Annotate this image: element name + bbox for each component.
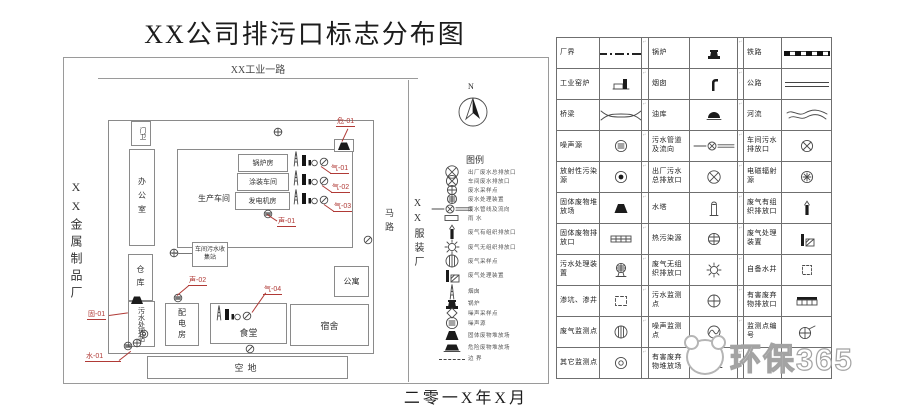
pollution-point — [132, 338, 142, 348]
sun-icon — [706, 262, 722, 278]
map-legend-item: 废气无组织排放口 — [440, 241, 516, 253]
legend-cell-label: 废气处理装置 — [744, 224, 782, 255]
legend-label: 桥梁 — [557, 110, 576, 121]
legend-cell-sep — [642, 69, 649, 100]
railway-icon — [784, 51, 830, 56]
legend-cell-sep — [642, 131, 649, 162]
building-label: 锅炉房 — [253, 158, 274, 168]
noise-source-icon — [614, 139, 628, 153]
legend-cell-label: 废气监测点 — [557, 317, 600, 348]
legend-cell-icon — [600, 38, 642, 69]
legend-cell-label: 电磁辐射源 — [744, 162, 782, 193]
map-legend-label: 边 界 — [468, 354, 482, 362]
kiln-icon — [611, 77, 631, 91]
legend-label: 放射性污染源 — [557, 167, 599, 187]
oil-depot-icon — [706, 109, 722, 121]
legend-cell-icon — [600, 286, 642, 317]
legend-cell-icon — [600, 131, 642, 162]
legend-cell-label: 铁路 — [744, 38, 782, 69]
legend-cell-label: 污水监测点 — [649, 286, 690, 317]
gas-treat-icon — [443, 267, 461, 283]
page-title: XX公司排污口标志分布图 — [63, 14, 547, 51]
legend-cell-icon — [782, 162, 832, 193]
building-boiler-room: 锅炉房 — [238, 154, 288, 172]
chimney-tower-icon — [214, 304, 224, 321]
building-office: 办公室 — [129, 149, 155, 246]
tag-hazard-01: 危-01 — [336, 118, 355, 127]
legend-label: 污水管道及流向 — [649, 136, 689, 156]
legend-cell-icon — [782, 224, 832, 255]
emission-cluster-2 — [291, 169, 330, 186]
building-power-room: 配电房 — [165, 303, 199, 346]
building-label: 宿舍 — [320, 319, 338, 332]
legend-label: 工业窑炉 — [557, 79, 591, 90]
trap-black-icon — [129, 292, 145, 309]
building-label: 配电房 — [177, 308, 188, 341]
map-legend-item: 边 界 — [440, 352, 482, 364]
legend-cell-sep — [642, 255, 649, 286]
legend-cell-sep — [642, 100, 649, 131]
top-road-label: XX工业一路 — [98, 61, 418, 76]
device-L-icon — [307, 194, 318, 205]
legend-cell-label: 污水管道及流向 — [649, 131, 690, 162]
legend-cell-icon — [782, 69, 832, 100]
solid-waste-icon — [612, 202, 630, 214]
tag-noise-02: 声-02 — [188, 277, 207, 286]
legend-label: 废气有组织排放口 — [744, 198, 781, 218]
map-legend-label: 固体废物堆放场 — [468, 331, 510, 339]
building-label: 仓库 — [135, 265, 146, 291]
outlet-main-icon — [706, 169, 722, 185]
legend-label: 有害废弃物堆放场 — [649, 353, 689, 373]
legend-cell-icon — [600, 317, 642, 348]
legend-cell-label: 厂界 — [557, 38, 600, 69]
legend-label: 铁路 — [744, 48, 763, 59]
right-neighbor-label: XX服装厂 — [410, 198, 425, 270]
device-L-icon — [230, 310, 241, 321]
legend-label: 油库 — [649, 110, 668, 121]
map-legend-label: 雨 水 — [468, 214, 482, 222]
map-legend-label: 烟囱 — [468, 287, 480, 295]
legend-label: 热污染源 — [649, 234, 683, 245]
legend-cell-label: 自备水井 — [744, 255, 782, 286]
map-legend-item: 废气处理装置 — [440, 269, 504, 281]
legend-cell-icon — [600, 69, 642, 100]
highway-icon — [785, 82, 829, 87]
river-icon — [785, 108, 829, 122]
legend-cell-icon — [600, 100, 642, 131]
legend-cell-sep — [642, 317, 649, 348]
black-bar-icon — [302, 174, 306, 186]
slash-circle-icon — [363, 232, 373, 249]
gas-treat-icon — [798, 231, 816, 247]
rainwater-icon — [444, 214, 460, 222]
map-legend-icon-slot — [440, 329, 464, 341]
building-label: 门卫 — [136, 127, 146, 140]
solid-outlet-icon — [610, 234, 632, 244]
building-label: 涂装车间 — [249, 177, 277, 187]
legend-cell-label: 噪声源 — [557, 131, 600, 162]
slash-circle-icon — [319, 176, 329, 186]
legend-cell-label: 锅炉 — [649, 38, 690, 69]
legend-label: 噪声监测点 — [649, 322, 689, 342]
legend-cell-sep — [642, 38, 649, 69]
legend-cell-label: 固体废物排放口 — [557, 224, 600, 255]
legend-label: 污水处理装置 — [557, 260, 599, 280]
legend-label: 固体废物堆放场 — [557, 198, 599, 218]
building-label: 车间污水收集站 — [193, 247, 227, 263]
map-legend-item: 固体废物堆放场 — [440, 329, 510, 341]
pollution-point — [245, 344, 255, 354]
tag-gas-01: 气-01 — [330, 165, 349, 174]
map-legend-item: 噪声源 — [440, 317, 486, 329]
map-legend-icon-slot — [440, 214, 464, 222]
legend-cell-label: 放射性污染源 — [557, 162, 600, 193]
legend-label: 公路 — [744, 79, 763, 90]
legend-cell-sep — [642, 286, 649, 317]
building-sewage-collect: 车间污水收集站 — [192, 242, 228, 267]
legend-cell-label: 废气无组织排放口 — [649, 255, 690, 286]
legend-label: 水塔 — [649, 203, 668, 214]
legend-label: 污水监测点 — [649, 291, 689, 311]
map-legend-label: 噪声采样点 — [468, 309, 498, 317]
legend-cell-sep — [642, 193, 649, 224]
map-legend-item: 废气采样点 — [440, 255, 498, 267]
building-label: 公寓 — [344, 276, 360, 287]
emission-cluster-4 — [214, 304, 253, 321]
building-empty-lot: 空地 — [147, 356, 348, 379]
legend-cell-icon — [690, 69, 738, 100]
legend-cell-icon — [600, 255, 642, 286]
legend-label: 渗坑、渗井 — [557, 296, 599, 307]
legend-cell-label: 热污染源 — [649, 224, 690, 255]
black-bar-icon — [302, 193, 306, 205]
seepage-icon — [614, 295, 628, 307]
map-legend-item: 雨 水 — [440, 212, 482, 224]
legend-cell-icon — [690, 131, 738, 162]
building-label: 生产车间 — [198, 193, 230, 204]
legend-cell-sep — [642, 162, 649, 193]
legend-cell-label: 有害废弃物排放口 — [744, 286, 782, 317]
bridge-icon — [600, 109, 642, 121]
noise-source-icon — [445, 316, 459, 330]
legend-label: 河流 — [744, 110, 763, 121]
map-legend-label: 废气处理装置 — [468, 271, 504, 279]
legend-cell-label: 渗坑、渗井 — [557, 286, 600, 317]
legend-label: 烟囱 — [649, 79, 668, 90]
building-dorm: 宿舍 — [290, 304, 369, 346]
legend-label: 有害废弃物排放口 — [744, 291, 781, 311]
legend-cell-label: 水塔 — [649, 193, 690, 224]
legend-cell-icon — [600, 193, 642, 224]
map-legend-label: 噪声源 — [468, 319, 486, 327]
compass-icon — [452, 86, 494, 135]
legend-label: 车间污水排放口 — [744, 136, 781, 156]
screenshot-root: XX公司排污口标志分布图 XX工业一路 XX金属制品厂 XX服装厂 马路 门卫办… — [0, 0, 909, 410]
legend-cell-label: 工业窑炉 — [557, 69, 600, 100]
legend-cell-icon — [690, 100, 738, 131]
legend-cell-label: 其它监测点 — [557, 348, 600, 379]
road-label: 马路 — [383, 208, 396, 236]
device-L-icon — [307, 175, 318, 186]
outlet-workshop-icon — [799, 138, 815, 154]
solid-waste-icon — [443, 329, 461, 341]
collect-leader-line — [172, 253, 192, 254]
map-legend-label: 废气无组织排放口 — [468, 243, 516, 251]
left-neighbor-label: XX金属制品厂 — [68, 180, 85, 303]
watermark-text: 环保365 — [730, 334, 854, 379]
legend-cell-sep — [642, 348, 649, 379]
device-L-icon — [307, 156, 318, 167]
legend-cell-icon — [782, 131, 832, 162]
legend-cell-icon — [782, 38, 832, 69]
emission-cluster-1 — [291, 150, 330, 167]
plus-circle-icon — [132, 335, 142, 352]
road-line — [408, 80, 409, 382]
border-dash-icon — [439, 356, 465, 360]
legend-label: 电磁辐射源 — [744, 167, 781, 187]
stack-black-icon — [802, 200, 812, 216]
trap-black-icon — [336, 141, 352, 151]
building-label: 食堂 — [239, 326, 257, 339]
legend-cell-icon — [782, 255, 832, 286]
legend-cell-label: 河流 — [744, 100, 782, 131]
thermal-icon — [707, 232, 721, 246]
legend-label: 厂界 — [557, 48, 576, 59]
legend-cell-sep — [642, 224, 649, 255]
building-label: 办公室 — [137, 177, 148, 219]
sewage-treat-icon — [613, 262, 629, 278]
legend-cell-label: 废气有组织排放口 — [744, 193, 782, 224]
slash-circle-icon — [245, 341, 255, 358]
building-paint-shop: 涂装车间 — [237, 173, 289, 191]
legend-cell-icon — [782, 100, 832, 131]
legend-label: 锅炉 — [649, 48, 668, 59]
map-legend-label: 危险废物堆放场 — [468, 343, 510, 351]
chimney-icon — [708, 76, 720, 92]
map-legend-label: 废水处理装置 — [468, 195, 504, 203]
chimney-tower-icon — [291, 150, 301, 167]
well-icon — [801, 264, 813, 276]
pipe-flow-icon — [693, 140, 735, 152]
legend-label: 自备水井 — [744, 265, 778, 276]
black-bar-icon — [225, 309, 229, 321]
map-legend-label: 废气有组织排放口 — [468, 228, 516, 236]
tag-water-01: 水-01 — [85, 353, 121, 362]
building-gate: 门卫 — [131, 121, 151, 146]
radioactive-icon — [614, 170, 628, 184]
monitor-other-icon — [614, 356, 628, 370]
boiler-icon — [705, 46, 723, 60]
hazard-waste-pile — [334, 139, 354, 152]
building-apartment: 公寓 — [334, 266, 369, 297]
map-legend-icon-slot — [440, 316, 464, 330]
legend-cell-icon — [600, 162, 642, 193]
legend-cell-label: 公路 — [744, 69, 782, 100]
map-legend-icon-slot — [440, 356, 464, 360]
legend-label: 出厂污水总排放口 — [649, 167, 689, 187]
legend-table: 厂界锅炉铁路工业窑炉烟囱公路桥梁油库河流噪声源污水管道及流向车间污水排放口放射性… — [556, 37, 832, 379]
tag-gas-04: 气-04 — [263, 286, 282, 295]
monitor-gas-icon — [613, 324, 629, 340]
emag-icon — [800, 170, 814, 184]
top-road-line — [98, 78, 418, 79]
legend-cell-icon — [690, 38, 738, 69]
tag-noise-01: 声-01 — [277, 218, 296, 227]
legend-cell-icon — [690, 286, 738, 317]
tag-solid-01: 固-01 — [87, 311, 106, 320]
legend-cell-icon — [600, 224, 642, 255]
map-legend-label: 锅炉 — [468, 299, 480, 307]
legend-cell-icon — [690, 224, 738, 255]
legend-label: 废气处理装置 — [744, 229, 781, 249]
legend-cell-label: 固体废物堆放场 — [557, 193, 600, 224]
chimney-tower-icon — [291, 169, 301, 186]
legend-cell-label: 车间污水排放口 — [744, 131, 782, 162]
chimney-tower-icon — [291, 188, 301, 205]
map-legend-icon-slot — [440, 267, 464, 283]
date-label: 二零一X年X月 — [63, 384, 528, 408]
map-legend-icon-slot — [440, 224, 464, 240]
solid-waste-pile — [129, 295, 145, 305]
boundary-line-icon — [600, 51, 642, 55]
building-label: 发电机房 — [249, 196, 277, 206]
legend-cell-label: 出厂污水总排放口 — [649, 162, 690, 193]
harmful-outlet-icon — [796, 296, 818, 306]
legend-cell-icon — [690, 193, 738, 224]
legend-cell-icon — [600, 348, 642, 379]
tag-gas-02: 气-02 — [331, 184, 350, 193]
legend-cell-label: 污水处理装置 — [557, 255, 600, 286]
watermark: 环保365 — [686, 334, 854, 379]
legend-cell-label: 烟囱 — [649, 69, 690, 100]
legend-cell-icon — [690, 255, 738, 286]
legend-cell-label: 油库 — [649, 100, 690, 131]
legend-label: 其它监测点 — [557, 358, 599, 369]
pollution-point — [273, 127, 283, 137]
map-legend-label: 废气采样点 — [468, 257, 498, 265]
monitor-water-icon — [706, 293, 722, 309]
pollution-point — [363, 235, 373, 245]
water-tower-icon — [708, 200, 720, 217]
black-bar-icon — [302, 155, 306, 167]
tag-gas-03: 气-03 — [333, 203, 352, 212]
legend-label: 固体废物排放口 — [557, 229, 599, 249]
legend-label: 噪声源 — [557, 141, 584, 152]
emission-cluster-3 — [291, 188, 330, 205]
building-label: 空地 — [234, 361, 260, 374]
plus-circle-icon — [273, 124, 283, 141]
slash-circle-icon — [242, 311, 252, 321]
legend-cell-label: 有害废弃物堆放场 — [649, 348, 690, 379]
map-legend-icon-slot — [440, 342, 464, 352]
legend-cell-icon — [782, 286, 832, 317]
legend-cell-label: 桥梁 — [557, 100, 600, 131]
harmful-site-icon — [443, 342, 461, 352]
legend-label: 废气监测点 — [557, 327, 599, 338]
legend-label: 废气无组织排放口 — [649, 260, 689, 280]
map-legend-item: 废气有组织排放口 — [440, 226, 516, 238]
legend-cell-icon — [782, 193, 832, 224]
mascot-logo-icon — [686, 339, 724, 375]
stack-black-icon — [447, 224, 457, 240]
legend-cell-icon — [690, 162, 738, 193]
